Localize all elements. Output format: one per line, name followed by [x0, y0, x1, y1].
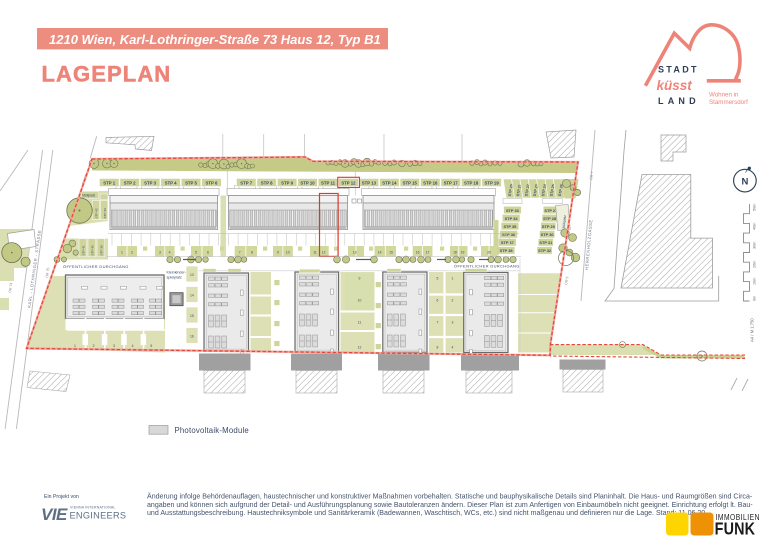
svg-text:50m: 50m — [753, 204, 757, 211]
svg-text:20m: 20m — [753, 261, 757, 268]
svg-text:12: 12 — [322, 250, 326, 254]
svg-text:3: 3 — [113, 344, 115, 348]
svg-text:STP 34: STP 34 — [505, 216, 519, 221]
svg-text:Müllplatz: Müllplatz — [82, 194, 95, 198]
svg-text:Photovoltaik-Module: Photovoltaik-Module — [175, 426, 249, 435]
svg-text:A4 / M 1:750: A4 / M 1:750 — [750, 318, 755, 342]
svg-text:STP 28: STP 28 — [543, 216, 557, 221]
svg-text:STP 29: STP 29 — [542, 224, 556, 229]
svg-text:STP 17: STP 17 — [444, 181, 459, 186]
svg-text:2: 2 — [452, 299, 454, 303]
svg-text:STP 13: STP 13 — [362, 181, 377, 186]
svg-text:STP 32: STP 32 — [538, 248, 552, 253]
svg-text:STP 11: STP 11 — [321, 181, 336, 186]
svg-text:STP 43: STP 43 — [103, 208, 107, 219]
svg-text:STP 36: STP 36 — [502, 232, 516, 237]
svg-text:VIENNA INTERNATIONAL: VIENNA INTERNATIONAL — [70, 506, 116, 510]
svg-text:2: 2 — [93, 344, 95, 348]
svg-text:16: 16 — [416, 250, 420, 254]
svg-text:OR 74: OR 74 — [8, 282, 13, 293]
svg-text:Wohnen in: Wohnen in — [709, 91, 739, 98]
svg-text:OR 7: OR 7 — [589, 171, 594, 180]
svg-text:LAND: LAND — [658, 96, 700, 106]
svg-text:STP 31: STP 31 — [539, 240, 553, 245]
svg-text:STP 8: STP 8 — [261, 181, 273, 186]
svg-text:STP 33: STP 33 — [506, 208, 520, 213]
svg-text:18: 18 — [453, 250, 457, 254]
svg-text:6: 6 — [437, 299, 439, 303]
svg-text:ÖFFENTLICHER DURCHGANG: ÖFFENTLICHER DURCHGANG — [63, 264, 129, 269]
svg-text:0m: 0m — [753, 296, 757, 301]
svg-text:17: 17 — [426, 250, 430, 254]
svg-text:STP 16: STP 16 — [423, 181, 438, 186]
svg-text:6: 6 — [207, 250, 209, 254]
svg-text:STP 35: STP 35 — [503, 224, 517, 229]
svg-text:3: 3 — [452, 321, 454, 325]
svg-text:16: 16 — [190, 335, 194, 339]
svg-text:20: 20 — [487, 250, 491, 254]
svg-text:STP 42: STP 42 — [95, 208, 99, 219]
svg-text:1: 1 — [121, 250, 123, 254]
svg-text:angaben und können sich aufgru: angaben und können sich aufgrund der Det… — [147, 502, 753, 509]
svg-text:STP 18: STP 18 — [464, 181, 479, 186]
svg-text:OR 5: OR 5 — [564, 276, 569, 285]
svg-text:STP 6: STP 6 — [206, 181, 218, 186]
svg-text:8: 8 — [251, 250, 253, 254]
svg-text:7: 7 — [239, 250, 241, 254]
svg-text:STP 38: STP 38 — [500, 248, 514, 253]
svg-text:STP 2: STP 2 — [124, 181, 136, 186]
svg-text:STP 19: STP 19 — [484, 181, 499, 186]
svg-text:STP 3: STP 3 — [144, 181, 156, 186]
svg-text:9: 9 — [359, 277, 361, 281]
svg-text:LAGEPLAN: LAGEPLAN — [42, 62, 172, 87]
svg-text:4: 4 — [452, 346, 454, 350]
svg-text:STP 1: STP 1 — [103, 181, 115, 186]
svg-text:VIE: VIE — [41, 505, 68, 524]
svg-text:14: 14 — [190, 294, 194, 298]
svg-text:12: 12 — [358, 346, 362, 350]
svg-text:STP 15: STP 15 — [403, 181, 418, 186]
svg-text:STP 10: STP 10 — [300, 181, 315, 186]
svg-text:STADT: STADT — [658, 65, 699, 75]
svg-text:STP 37: STP 37 — [501, 240, 514, 245]
svg-text:40m: 40m — [753, 223, 757, 230]
svg-text:STP 41: STP 41 — [82, 245, 86, 256]
svg-text:10: 10 — [286, 250, 290, 254]
svg-text:Kleinkinder-: Kleinkinder- — [167, 271, 187, 275]
svg-text:1: 1 — [452, 277, 454, 281]
svg-text:11: 11 — [313, 250, 317, 254]
svg-text:3: 3 — [159, 250, 161, 254]
svg-text:5: 5 — [150, 344, 152, 348]
svg-text:10m: 10m — [753, 278, 757, 285]
svg-text:19: 19 — [461, 250, 465, 254]
svg-text:HERRENHOLZGASSE: HERRENHOLZGASSE — [584, 219, 593, 270]
svg-text:11: 11 — [358, 321, 362, 325]
svg-text:4: 4 — [132, 344, 134, 348]
svg-text:FUNK: FUNK — [715, 520, 756, 539]
svg-text:15: 15 — [190, 314, 194, 318]
svg-text:15: 15 — [389, 250, 393, 254]
svg-text:STP 9: STP 9 — [281, 181, 293, 186]
svg-text:Ein Projekt von: Ein Projekt von — [44, 494, 79, 500]
svg-text:STP 5: STP 5 — [185, 181, 197, 186]
svg-text:9: 9 — [277, 250, 279, 254]
svg-text:STP 39: STP 39 — [100, 245, 104, 256]
svg-text:1210 Wien, Karl-Lothringer-Str: 1210 Wien, Karl-Lothringer-Straße 73 Hau… — [49, 32, 381, 47]
svg-text:STP 40: STP 40 — [91, 245, 95, 256]
svg-text:küsst: küsst — [657, 78, 693, 93]
svg-text:5: 5 — [195, 250, 197, 254]
svg-text:und Ausstattungsbeschreibung.: und Ausstattungsbeschreibung. Haustechni… — [147, 510, 705, 517]
svg-text:STP 30: STP 30 — [541, 232, 554, 237]
svg-text:14: 14 — [378, 250, 382, 254]
svg-text:8: 8 — [437, 346, 439, 350]
svg-text:Stammersdorf: Stammersdorf — [709, 99, 748, 106]
svg-text:13: 13 — [190, 273, 194, 277]
svg-text:STP 4: STP 4 — [165, 181, 177, 186]
svg-text:ÖFFENTLICHER DURCHGANG: ÖFFENTLICHER DURCHGANG — [454, 264, 520, 269]
svg-text:1: 1 — [74, 344, 76, 348]
svg-text:2: 2 — [131, 250, 133, 254]
svg-text:7: 7 — [437, 321, 439, 325]
svg-text:N: N — [741, 177, 748, 188]
svg-text:ENGINEERS: ENGINEERS — [70, 511, 127, 521]
svg-text:OR 75: OR 75 — [45, 267, 50, 278]
svg-text:13: 13 — [353, 250, 357, 254]
svg-text:5: 5 — [437, 277, 439, 281]
svg-text:STP 12: STP 12 — [341, 181, 356, 186]
svg-text:STP 14: STP 14 — [382, 181, 397, 186]
svg-text:10: 10 — [358, 299, 362, 303]
svg-text:spielplatz: spielplatz — [167, 276, 183, 280]
svg-text:30m: 30m — [753, 242, 757, 249]
svg-text:STP 7: STP 7 — [240, 181, 252, 186]
svg-text:4: 4 — [169, 250, 171, 254]
svg-text:STP 27: STP 27 — [544, 208, 557, 213]
svg-text:Änderung infolge Behördenaufla: Änderung infolge Behördenauflagen, haust… — [147, 493, 753, 501]
